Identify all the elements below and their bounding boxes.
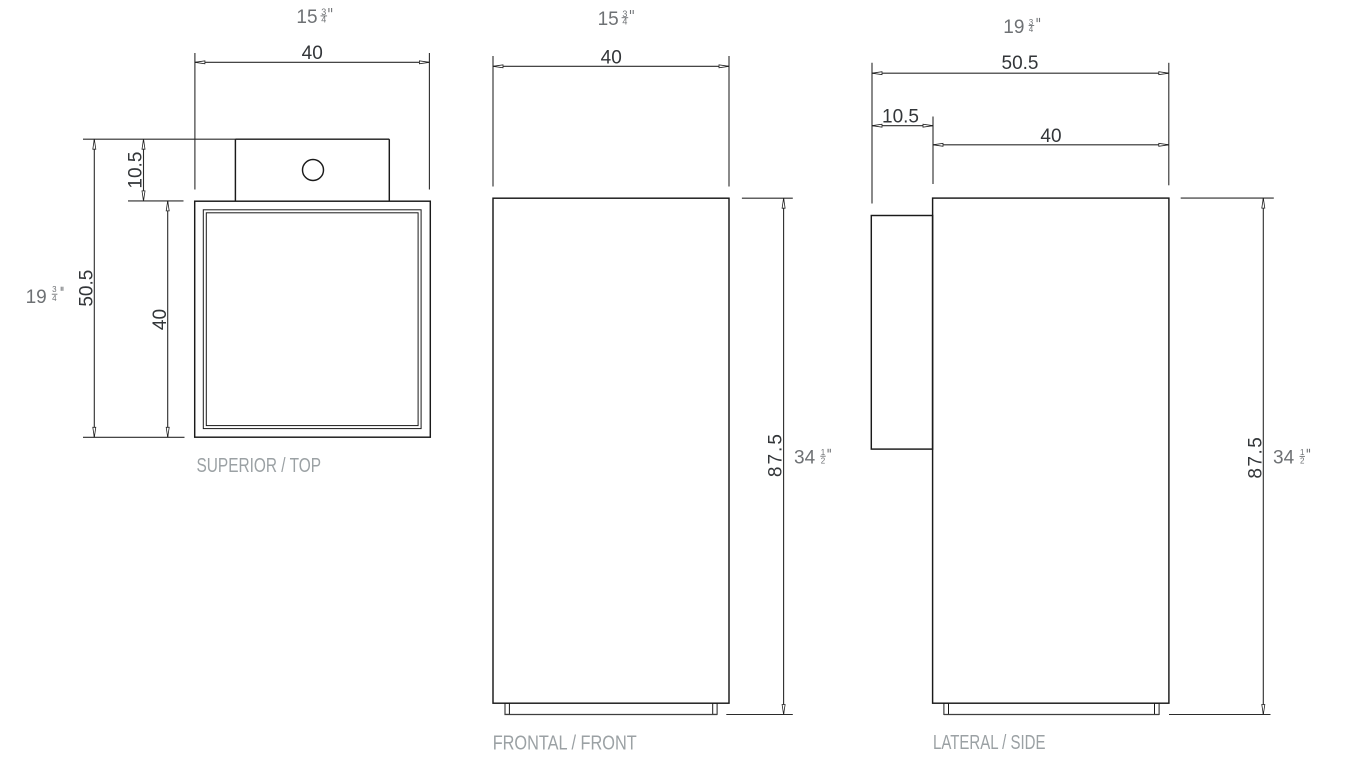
svg-text:LATERAL / SIDE: LATERAL / SIDE <box>933 731 1046 754</box>
svg-text:10.5: 10.5 <box>126 152 147 189</box>
svg-text:50.5: 50.5 <box>1002 53 1039 74</box>
svg-text:19: 19 <box>26 287 47 308</box>
svg-text:10.5: 10.5 <box>882 107 919 128</box>
svg-text:15: 15 <box>296 7 317 28</box>
svg-text:87.5: 87.5 <box>766 434 787 477</box>
svg-text:34: 34 <box>794 447 816 468</box>
svg-text:4: 4 <box>1029 25 1034 34</box>
svg-text:34: 34 <box>1273 448 1295 469</box>
svg-text:15: 15 <box>598 9 619 30</box>
svg-text:FRONTAL / FRONT: FRONTAL / FRONT <box>493 732 637 755</box>
svg-text:87.5: 87.5 <box>1245 437 1266 479</box>
svg-text:4: 4 <box>622 17 627 27</box>
svg-text:40: 40 <box>302 43 323 64</box>
svg-text:4: 4 <box>52 294 57 303</box>
svg-text:40: 40 <box>601 47 622 68</box>
svg-text:2: 2 <box>821 456 826 465</box>
svg-text:3: 3 <box>52 285 57 294</box>
svg-text:19: 19 <box>1003 17 1024 38</box>
svg-text:4: 4 <box>321 14 326 24</box>
svg-text:2: 2 <box>1300 457 1305 466</box>
svg-text:50.5: 50.5 <box>76 270 97 307</box>
svg-text:40: 40 <box>1040 126 1061 147</box>
svg-text:SUPERIOR / TOP: SUPERIOR / TOP <box>197 454 322 477</box>
svg-text:40: 40 <box>150 309 171 330</box>
